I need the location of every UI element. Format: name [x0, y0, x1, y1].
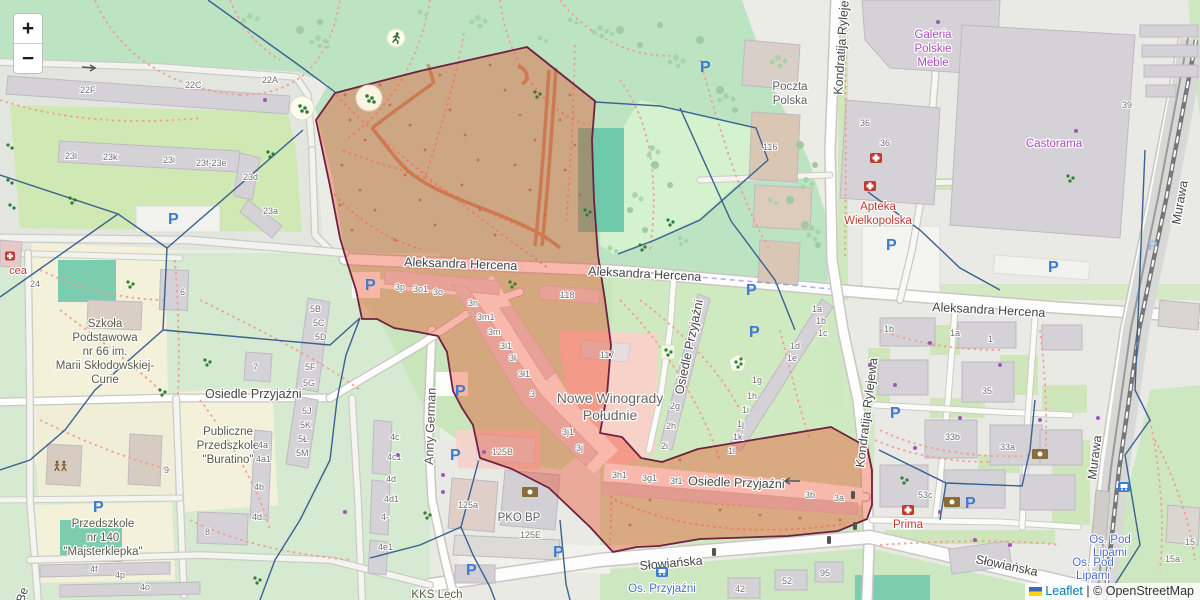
svg-text:2i: 2i	[661, 441, 668, 451]
svg-text:P: P	[749, 324, 760, 341]
svg-text:1e: 1e	[787, 353, 797, 363]
svg-text:cea: cea	[9, 265, 28, 277]
svg-text:52: 52	[782, 576, 792, 586]
svg-text:Polskie: Polskie	[914, 43, 951, 55]
svg-text:33a: 33a	[1000, 442, 1015, 452]
svg-text:P: P	[886, 237, 897, 254]
svg-text:4b: 4b	[254, 482, 264, 492]
svg-text:118: 118	[560, 290, 574, 300]
svg-text:3b: 3b	[805, 490, 815, 500]
svg-text:P: P	[1048, 259, 1059, 276]
svg-text:1b: 1b	[884, 324, 894, 334]
svg-text:Anny German: Anny German	[422, 387, 439, 465]
svg-text:4a: 4a	[258, 440, 268, 450]
svg-text:1a: 1a	[812, 304, 822, 314]
svg-text:P: P	[1148, 237, 1157, 253]
svg-text:P: P	[168, 211, 179, 228]
svg-text:1b: 1b	[816, 316, 826, 326]
svg-text:1: 1	[988, 334, 993, 344]
svg-text:3g1: 3g1	[642, 473, 657, 483]
svg-text:Prima: Prima	[893, 519, 924, 531]
svg-text:3h1: 3h1	[612, 470, 627, 480]
svg-text:Wielkopolska: Wielkopolska	[844, 215, 912, 227]
svg-text:"Majsterklepka": "Majsterklepka"	[63, 546, 142, 558]
svg-text:4e1: 4e1	[378, 542, 393, 552]
svg-text:Lipami: Lipami	[1076, 570, 1110, 582]
svg-text:1l: 1l	[728, 446, 735, 456]
svg-text:Południe: Południe	[583, 407, 638, 423]
svg-text:4o: 4o	[140, 582, 150, 592]
svg-text:4a1: 4a1	[256, 454, 271, 464]
svg-text:3a: 3a	[834, 493, 844, 503]
svg-text:1i: 1i	[742, 405, 749, 415]
svg-text:Podstawowa: Podstawowa	[72, 332, 138, 344]
svg-text:15: 15	[1185, 537, 1195, 547]
svg-text:5J: 5J	[302, 406, 312, 416]
svg-text:P: P	[466, 562, 477, 579]
svg-text:53c: 53c	[918, 490, 933, 500]
svg-text:Poczta: Poczta	[772, 81, 808, 93]
svg-text:Publiczne: Publiczne	[203, 426, 253, 438]
svg-text:3j1: 3j1	[562, 427, 574, 437]
svg-text:Os. Pod: Os. Pod	[1089, 534, 1131, 546]
svg-text:23a: 23a	[263, 206, 278, 216]
svg-text:Galeria: Galeria	[914, 29, 952, 41]
svg-text:42: 42	[735, 584, 745, 594]
svg-text:Meble: Meble	[917, 57, 948, 69]
svg-text:125B: 125B	[492, 447, 513, 457]
svg-text:5D: 5D	[315, 332, 327, 342]
svg-text:P: P	[965, 495, 976, 512]
svg-text:24: 24	[30, 279, 40, 289]
svg-text:22F: 22F	[80, 85, 96, 95]
svg-text:P: P	[450, 447, 461, 464]
svg-text:39: 39	[1122, 100, 1132, 110]
svg-text:3n: 3n	[468, 298, 478, 308]
svg-text:Castorama: Castorama	[1026, 138, 1083, 150]
svg-text:PKO BP: PKO BP	[498, 512, 541, 524]
svg-text:8: 8	[205, 527, 210, 537]
svg-text:Przedszkole: Przedszkole	[197, 440, 260, 452]
svg-text:Polska: Polska	[773, 95, 808, 107]
svg-text:6: 6	[180, 287, 185, 297]
svg-text:Nowe Winogrady: Nowe Winogrady	[557, 390, 664, 406]
svg-text:4-: 4-	[381, 512, 389, 522]
svg-text:33b: 33b	[945, 432, 960, 442]
svg-text:1h: 1h	[747, 391, 757, 401]
svg-text:P: P	[746, 282, 757, 299]
svg-text:3l1: 3l1	[500, 341, 512, 351]
svg-text:9: 9	[164, 465, 169, 475]
svg-text:3ł: 3ł	[509, 353, 516, 363]
svg-text:1a: 1a	[950, 328, 960, 338]
svg-text:3p: 3p	[395, 282, 405, 292]
svg-text:15a: 15a	[1165, 554, 1180, 564]
svg-text:22A: 22A	[262, 75, 278, 85]
svg-text:3o1: 3o1	[413, 284, 428, 294]
svg-text:3ł1: 3ł1	[518, 369, 530, 379]
svg-text:116: 116	[763, 142, 777, 152]
svg-text:95: 95	[820, 568, 830, 578]
svg-text:4f: 4f	[90, 564, 98, 574]
svg-text:1c: 1c	[818, 328, 828, 338]
svg-text:3f1: 3f1	[670, 476, 683, 486]
svg-text:22C: 22C	[185, 80, 202, 90]
svg-text:3: 3	[530, 389, 535, 399]
svg-text:23l: 23l	[65, 151, 77, 161]
svg-text:5Ł: 5Ł	[298, 434, 308, 444]
svg-text:35: 35	[982, 386, 992, 396]
svg-text:Osiedle Przyjaźni: Osiedle Przyjaźni	[205, 387, 302, 401]
svg-text:Przedszkole: Przedszkole	[72, 518, 135, 530]
svg-text:1g: 1g	[752, 375, 762, 385]
svg-text:36: 36	[880, 138, 890, 148]
svg-text:Os. Przyjaźni: Os. Przyjaźni	[628, 583, 696, 595]
svg-text:5C: 5C	[313, 318, 325, 328]
svg-text:2g: 2g	[670, 401, 680, 411]
svg-text:5F: 5F	[305, 362, 316, 372]
svg-text:5B: 5B	[310, 304, 321, 314]
svg-text:2h: 2h	[666, 421, 676, 431]
svg-text:1d: 1d	[790, 341, 800, 351]
svg-text:"Buratino": "Buratino"	[203, 454, 254, 466]
svg-text:23i: 23i	[163, 155, 175, 165]
svg-text:4p: 4p	[115, 570, 125, 580]
svg-text:Marii Skłodowskiej-: Marii Skłodowskiej-	[56, 360, 155, 372]
svg-text:Apteka: Apteka	[860, 201, 896, 213]
svg-text:P: P	[553, 544, 564, 561]
svg-text:nr 66 im.: nr 66 im.	[83, 346, 128, 358]
svg-text:P: P	[93, 499, 104, 516]
svg-text:1k: 1k	[733, 432, 743, 442]
svg-text:23f-23e: 23f-23e	[196, 158, 227, 168]
svg-text:3m: 3m	[488, 327, 501, 337]
svg-text:P: P	[700, 59, 711, 76]
svg-text:3o: 3o	[433, 287, 443, 297]
svg-text:nr 140: nr 140	[87, 532, 120, 544]
svg-text:P: P	[455, 383, 466, 400]
svg-text:3j: 3j	[576, 443, 583, 453]
svg-text:7: 7	[253, 362, 258, 372]
svg-text:5G: 5G	[303, 378, 315, 388]
svg-text:1j: 1j	[737, 419, 744, 429]
svg-text:4c: 4c	[390, 432, 400, 442]
svg-text:125E: 125E	[520, 530, 541, 540]
svg-text:4d1: 4d1	[384, 494, 399, 504]
svg-text:117: 117	[600, 350, 614, 360]
svg-text:Szkoła: Szkoła	[88, 318, 123, 330]
svg-text:KKS Lech: KKS Lech	[411, 589, 462, 600]
svg-text:5M: 5M	[296, 448, 309, 458]
svg-text:5K: 5K	[300, 420, 311, 430]
svg-text:4c1: 4c1	[387, 452, 402, 462]
svg-text:3m1: 3m1	[477, 312, 495, 322]
svg-text:4d: 4d	[386, 474, 396, 484]
svg-text:Os. Pod: Os. Pod	[1072, 557, 1114, 569]
svg-text:4d: 4d	[252, 512, 262, 522]
svg-text:23k: 23k	[103, 152, 118, 162]
svg-text:36: 36	[860, 118, 870, 128]
svg-text:125a: 125a	[458, 500, 478, 510]
svg-text:P: P	[890, 405, 901, 422]
svg-text:P: P	[365, 277, 376, 294]
svg-text:Curie: Curie	[91, 374, 118, 386]
